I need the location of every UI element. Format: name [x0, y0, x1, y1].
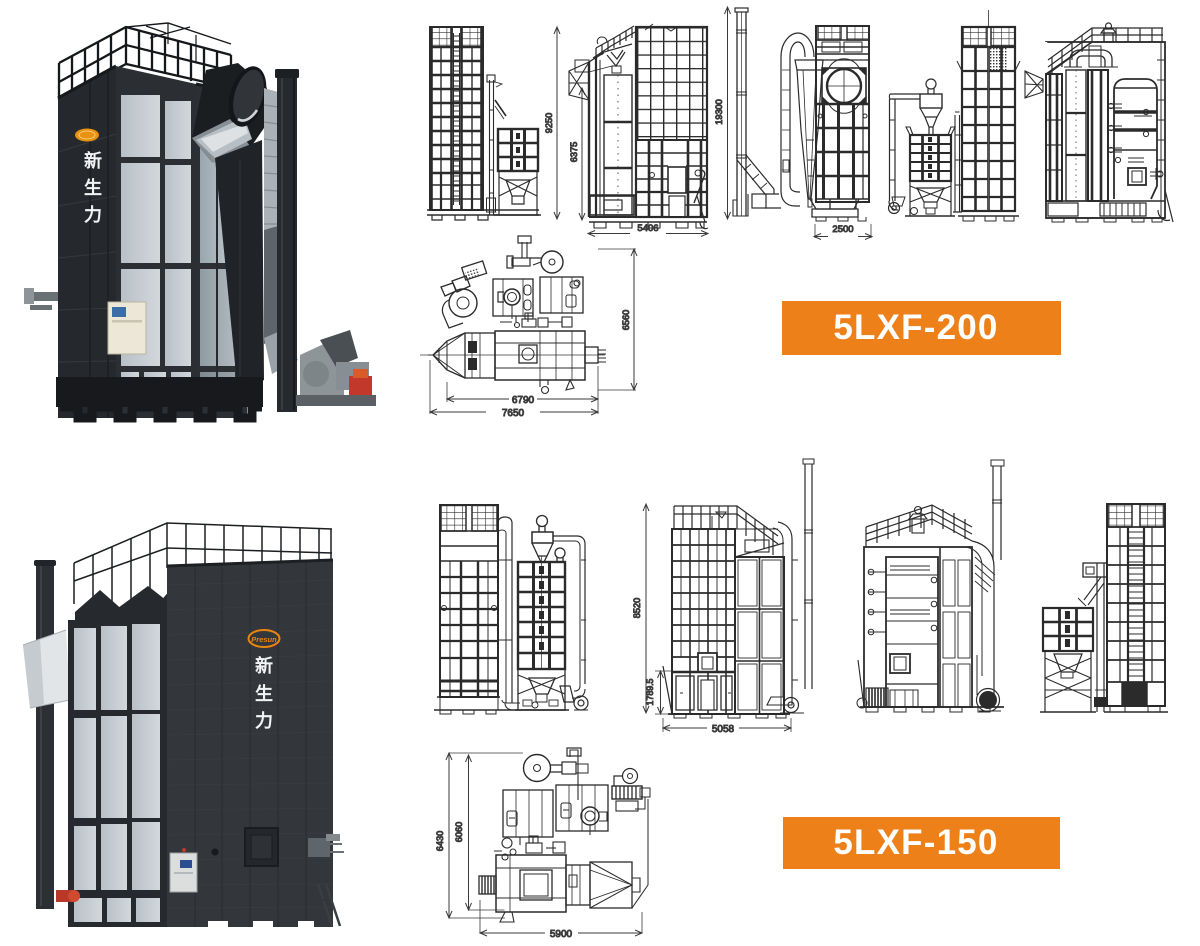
svg-text:6060: 6060 [454, 822, 464, 842]
svg-text:7650: 7650 [502, 408, 525, 419]
svg-text:6560: 6560 [621, 310, 631, 330]
svg-text:力: 力 [255, 711, 273, 731]
svg-text:6430: 6430 [435, 831, 445, 851]
svg-text:生: 生 [84, 177, 102, 198]
svg-text:19300: 19300 [714, 99, 724, 125]
svg-text:生: 生 [255, 683, 273, 704]
svg-text:5058: 5058 [712, 724, 735, 735]
svg-text:5LXF-150: 5LXF-150 [833, 823, 998, 862]
svg-text:2500: 2500 [832, 224, 853, 235]
svg-text:新: 新 [84, 150, 102, 171]
svg-text:5900: 5900 [550, 929, 573, 940]
svg-text:Presun: Presun [251, 635, 277, 644]
svg-text:6375: 6375 [569, 142, 579, 162]
svg-text:1789.5: 1789.5 [645, 678, 655, 705]
svg-text:力: 力 [84, 205, 102, 225]
svg-text:6790: 6790 [512, 395, 535, 406]
svg-text:8520: 8520 [632, 598, 642, 618]
svg-text:5LXF-200: 5LXF-200 [833, 308, 998, 347]
svg-text:5406: 5406 [637, 223, 658, 234]
svg-text:9250: 9250 [544, 113, 554, 133]
svg-text:新: 新 [255, 655, 273, 676]
